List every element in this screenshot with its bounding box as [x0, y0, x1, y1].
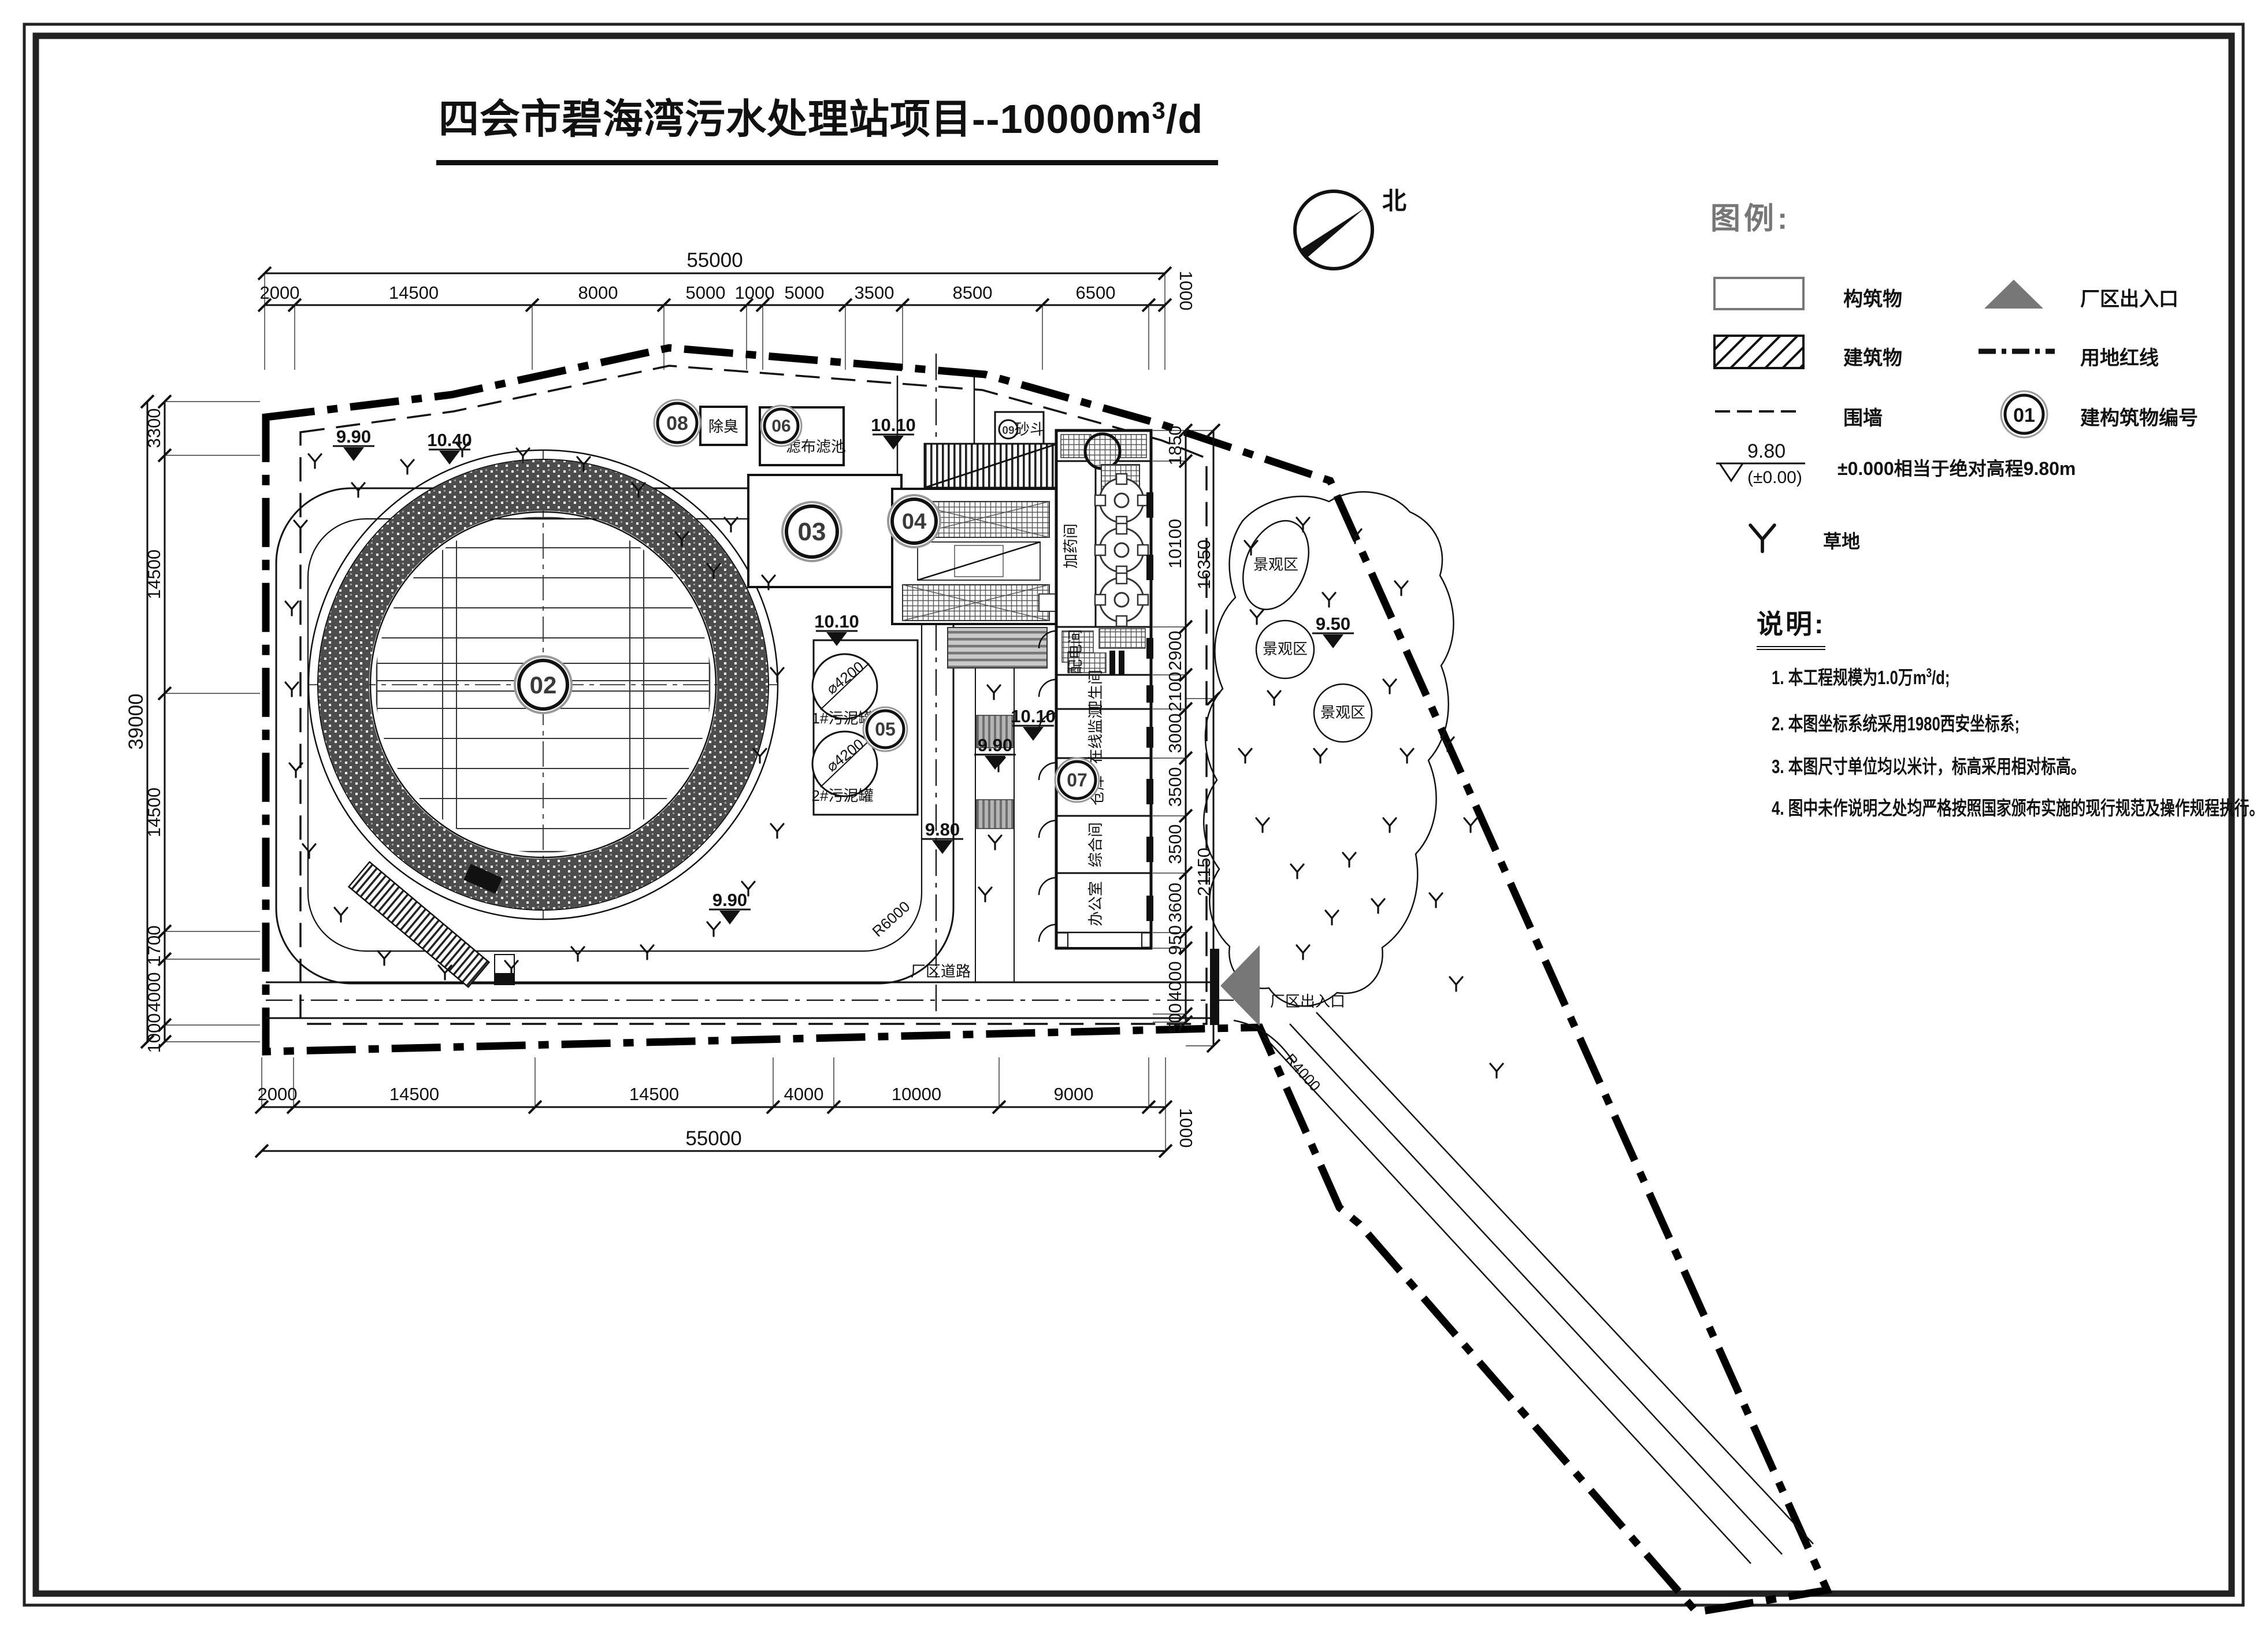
svg-text:1700: 1700: [144, 926, 164, 966]
dimension-labels-top: 55000 2000 14500 8000 5000 1000 5000 350…: [260, 249, 1196, 310]
scenic-label-2: 景观区: [1263, 640, 1308, 658]
svg-text:2900: 2900: [1165, 631, 1185, 671]
legend-entrance-label: 厂区出入口: [2080, 283, 2178, 311]
entrance-triangle-icon: [1984, 280, 2043, 309]
svg-text:8000: 8000: [578, 283, 618, 303]
plant-gate: 厂区出入口: [1210, 945, 1345, 1026]
general-room-label: 综合间: [1087, 822, 1104, 867]
svg-text:3600: 3600: [1165, 883, 1185, 923]
legend-redline-swatch: [1976, 340, 2057, 363]
svg-text:3500: 3500: [855, 283, 894, 303]
svg-text:14500: 14500: [389, 1084, 439, 1104]
svg-text:10.10: 10.10: [814, 611, 859, 632]
svg-text:6500: 6500: [1076, 283, 1116, 303]
bubble-06: 06: [771, 417, 790, 436]
svg-text:10000: 10000: [892, 1084, 941, 1104]
legend-structure-label: 构筑物: [1843, 283, 1902, 311]
deodor-label: 除臭: [708, 418, 738, 435]
bubble-03: 03: [798, 518, 826, 546]
north-label: 北: [1382, 187, 1406, 214]
legend-entrance-swatch: [1982, 276, 2046, 311]
svg-text:14500: 14500: [144, 549, 164, 599]
scenic-label-1: 景观区: [1253, 556, 1298, 573]
note-1-suffix: /d;: [1932, 667, 1950, 688]
legend-elevation-symbol: 9.80 (±0.00): [1713, 438, 1834, 502]
svg-text:14500: 14500: [389, 283, 439, 303]
plant-road-label: 厂区道路: [911, 963, 971, 980]
svg-text:10100: 10100: [1165, 519, 1185, 569]
structure-09-sand-hopper: 09 砂斗: [995, 412, 1045, 447]
building-04: [892, 444, 1060, 668]
svg-text:9.80: 9.80: [925, 819, 960, 840]
svg-text:39000: 39000: [125, 693, 147, 749]
svg-text:5000: 5000: [785, 283, 825, 303]
bubble-04: 04: [902, 510, 926, 534]
svg-text:10.10: 10.10: [871, 415, 916, 435]
bubble-02: 02: [530, 671, 557, 699]
svg-text:2100: 2100: [1165, 672, 1185, 712]
svg-text:4000: 4000: [784, 1084, 824, 1104]
power-room-label: 配电间: [1067, 629, 1084, 674]
note-1-sup: 3: [1926, 666, 1932, 680]
svg-text:8500: 8500: [953, 283, 993, 303]
legend-building-swatch: [1713, 334, 1805, 370]
elevation-triangle-icon: [1720, 463, 1743, 481]
scenic-label-3: 景观区: [1320, 704, 1365, 721]
svg-text:9.50: 9.50: [1316, 614, 1350, 634]
svg-text:4000: 4000: [144, 972, 164, 1012]
svg-text:9.90: 9.90: [978, 735, 1012, 755]
svg-text:1000: 1000: [144, 1013, 164, 1053]
legend-fence-label: 围墙: [1843, 402, 1883, 430]
monitoring-room-label: 在线监测: [1087, 704, 1104, 764]
grass-icon: [1750, 525, 1775, 552]
legend-redline-label: 用地红线: [2080, 342, 2159, 370]
svg-text:2000: 2000: [258, 1084, 298, 1104]
bubble-05: 05: [875, 719, 896, 740]
bubble-07: 07: [1067, 770, 1087, 790]
drawing-sheet: 北 R6000 R4000 厂区道路: [0, 0, 2268, 1630]
svg-text:16350: 16350: [1194, 540, 1214, 589]
legend-number-sample: 01: [2013, 404, 2035, 426]
svg-text:3000: 3000: [1165, 714, 1185, 753]
dosing-room-label: 加药间: [1062, 523, 1079, 569]
legend-number-swatch: 01: [1998, 388, 2050, 440]
svg-text:1850: 1850: [1165, 426, 1185, 466]
sand-hopper-label: 砂斗: [1015, 421, 1045, 438]
note-1-text: 1. 本工程规模为1.0万m: [1772, 667, 1926, 688]
svg-text:21150: 21150: [1194, 848, 1214, 896]
north-compass-icon: 北: [1295, 187, 1406, 269]
dimension-chain-right: [1153, 424, 1220, 1052]
svg-text:1000: 1000: [1176, 1108, 1196, 1148]
svg-text:5000: 5000: [686, 283, 726, 303]
legend-building-label: 建筑物: [1843, 342, 1902, 370]
office-label: 办公室: [1087, 881, 1104, 926]
svg-text:14500: 14500: [629, 1084, 679, 1104]
legend-elev-datum: (±0.00): [1747, 468, 1802, 487]
road-radius-r6000: R6000: [868, 898, 913, 941]
dimension-labels-left: 39000 3300 14500 14500 1700 4000 1000: [125, 409, 164, 1053]
legend-grass-label: 草地: [1823, 527, 1860, 554]
svg-text:9.90: 9.90: [712, 890, 747, 910]
legend-fence-swatch: [1713, 400, 1805, 423]
svg-text:9.90: 9.90: [336, 426, 371, 447]
svg-text:55000: 55000: [686, 249, 743, 272]
landscape-area: [1204, 492, 1453, 1006]
note-1: 1. 本工程规模为1.0万m3/d;: [1772, 662, 1950, 690]
svg-text:14500: 14500: [144, 788, 164, 837]
legend-structure-swatch: [1713, 276, 1805, 311]
bubble-09: 09: [1002, 425, 1014, 437]
notes-heading: 说明:: [1757, 603, 1825, 650]
svg-text:55000: 55000: [685, 1127, 741, 1150]
dimension-labels-bottom: 55000 2000 14500 14500 4000 10000 9000 1…: [258, 1084, 1196, 1150]
svg-text:4000: 4000: [1165, 961, 1185, 1001]
svg-text:500: 500: [1165, 1003, 1185, 1033]
svg-text:10.10: 10.10: [1011, 706, 1056, 726]
svg-text:3300: 3300: [144, 409, 164, 448]
note-2: 2. 本图坐标系统采用1980西安坐标系;: [1772, 708, 2020, 736]
svg-text:1000: 1000: [735, 283, 775, 303]
svg-text:3500: 3500: [1165, 825, 1185, 864]
title-suffix: /d: [1166, 96, 1203, 142]
gate-triangle-icon: [1220, 945, 1260, 1026]
gate-label: 厂区出入口: [1270, 993, 1345, 1010]
title-text: 四会市碧海湾污水处理站项目--10000m: [439, 96, 1152, 142]
note-4: 4. 图中未作说明之处均严格按照国家颁布实施的现行规范及操作规程执行。: [1772, 793, 2264, 820]
note-3: 3. 本图尺寸单位均以米计，标高采用相对标高。: [1772, 751, 2085, 779]
legend-grass-symbol: [1742, 520, 1783, 557]
legend-elev-desc: ±0.000相当于绝对高程9.80m: [1838, 454, 2076, 481]
sludge-tank2-label: 2#污泥罐: [812, 787, 874, 804]
svg-text:9000: 9000: [1054, 1084, 1094, 1104]
legend-elev-value: 9.80: [1747, 440, 1786, 462]
structure-08-deodor: 除臭: [700, 407, 747, 445]
bubble-08: 08: [666, 413, 688, 435]
svg-text:3500: 3500: [1165, 767, 1185, 807]
svg-text:2000: 2000: [260, 283, 300, 303]
page-title: 四会市碧海湾污水处理站项目--10000m3/d: [436, 87, 1218, 165]
legend-numbering-label: 建构筑物编号: [2080, 402, 2198, 430]
svg-text:950: 950: [1165, 925, 1185, 955]
title-sup: 3: [1152, 97, 1166, 124]
legend-heading: 图例:: [1710, 194, 1791, 237]
svg-text:1000: 1000: [1176, 271, 1196, 311]
